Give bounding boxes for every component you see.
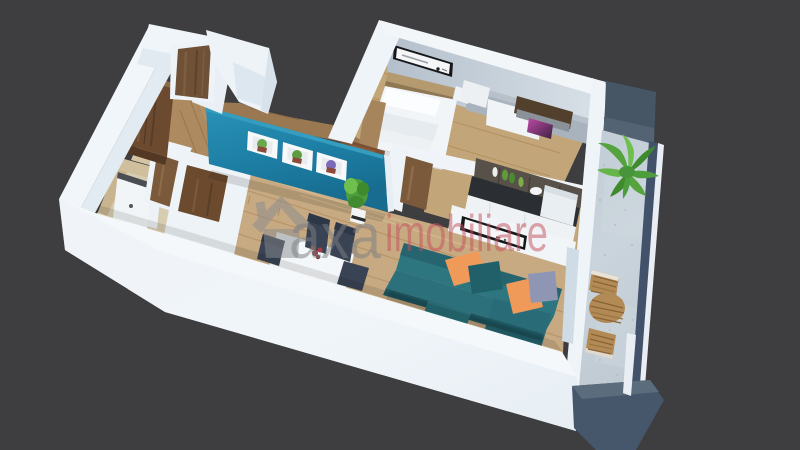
svg-text:axa: axa [289,200,381,272]
svg-text:imobiliare: imobiliare [385,205,548,263]
